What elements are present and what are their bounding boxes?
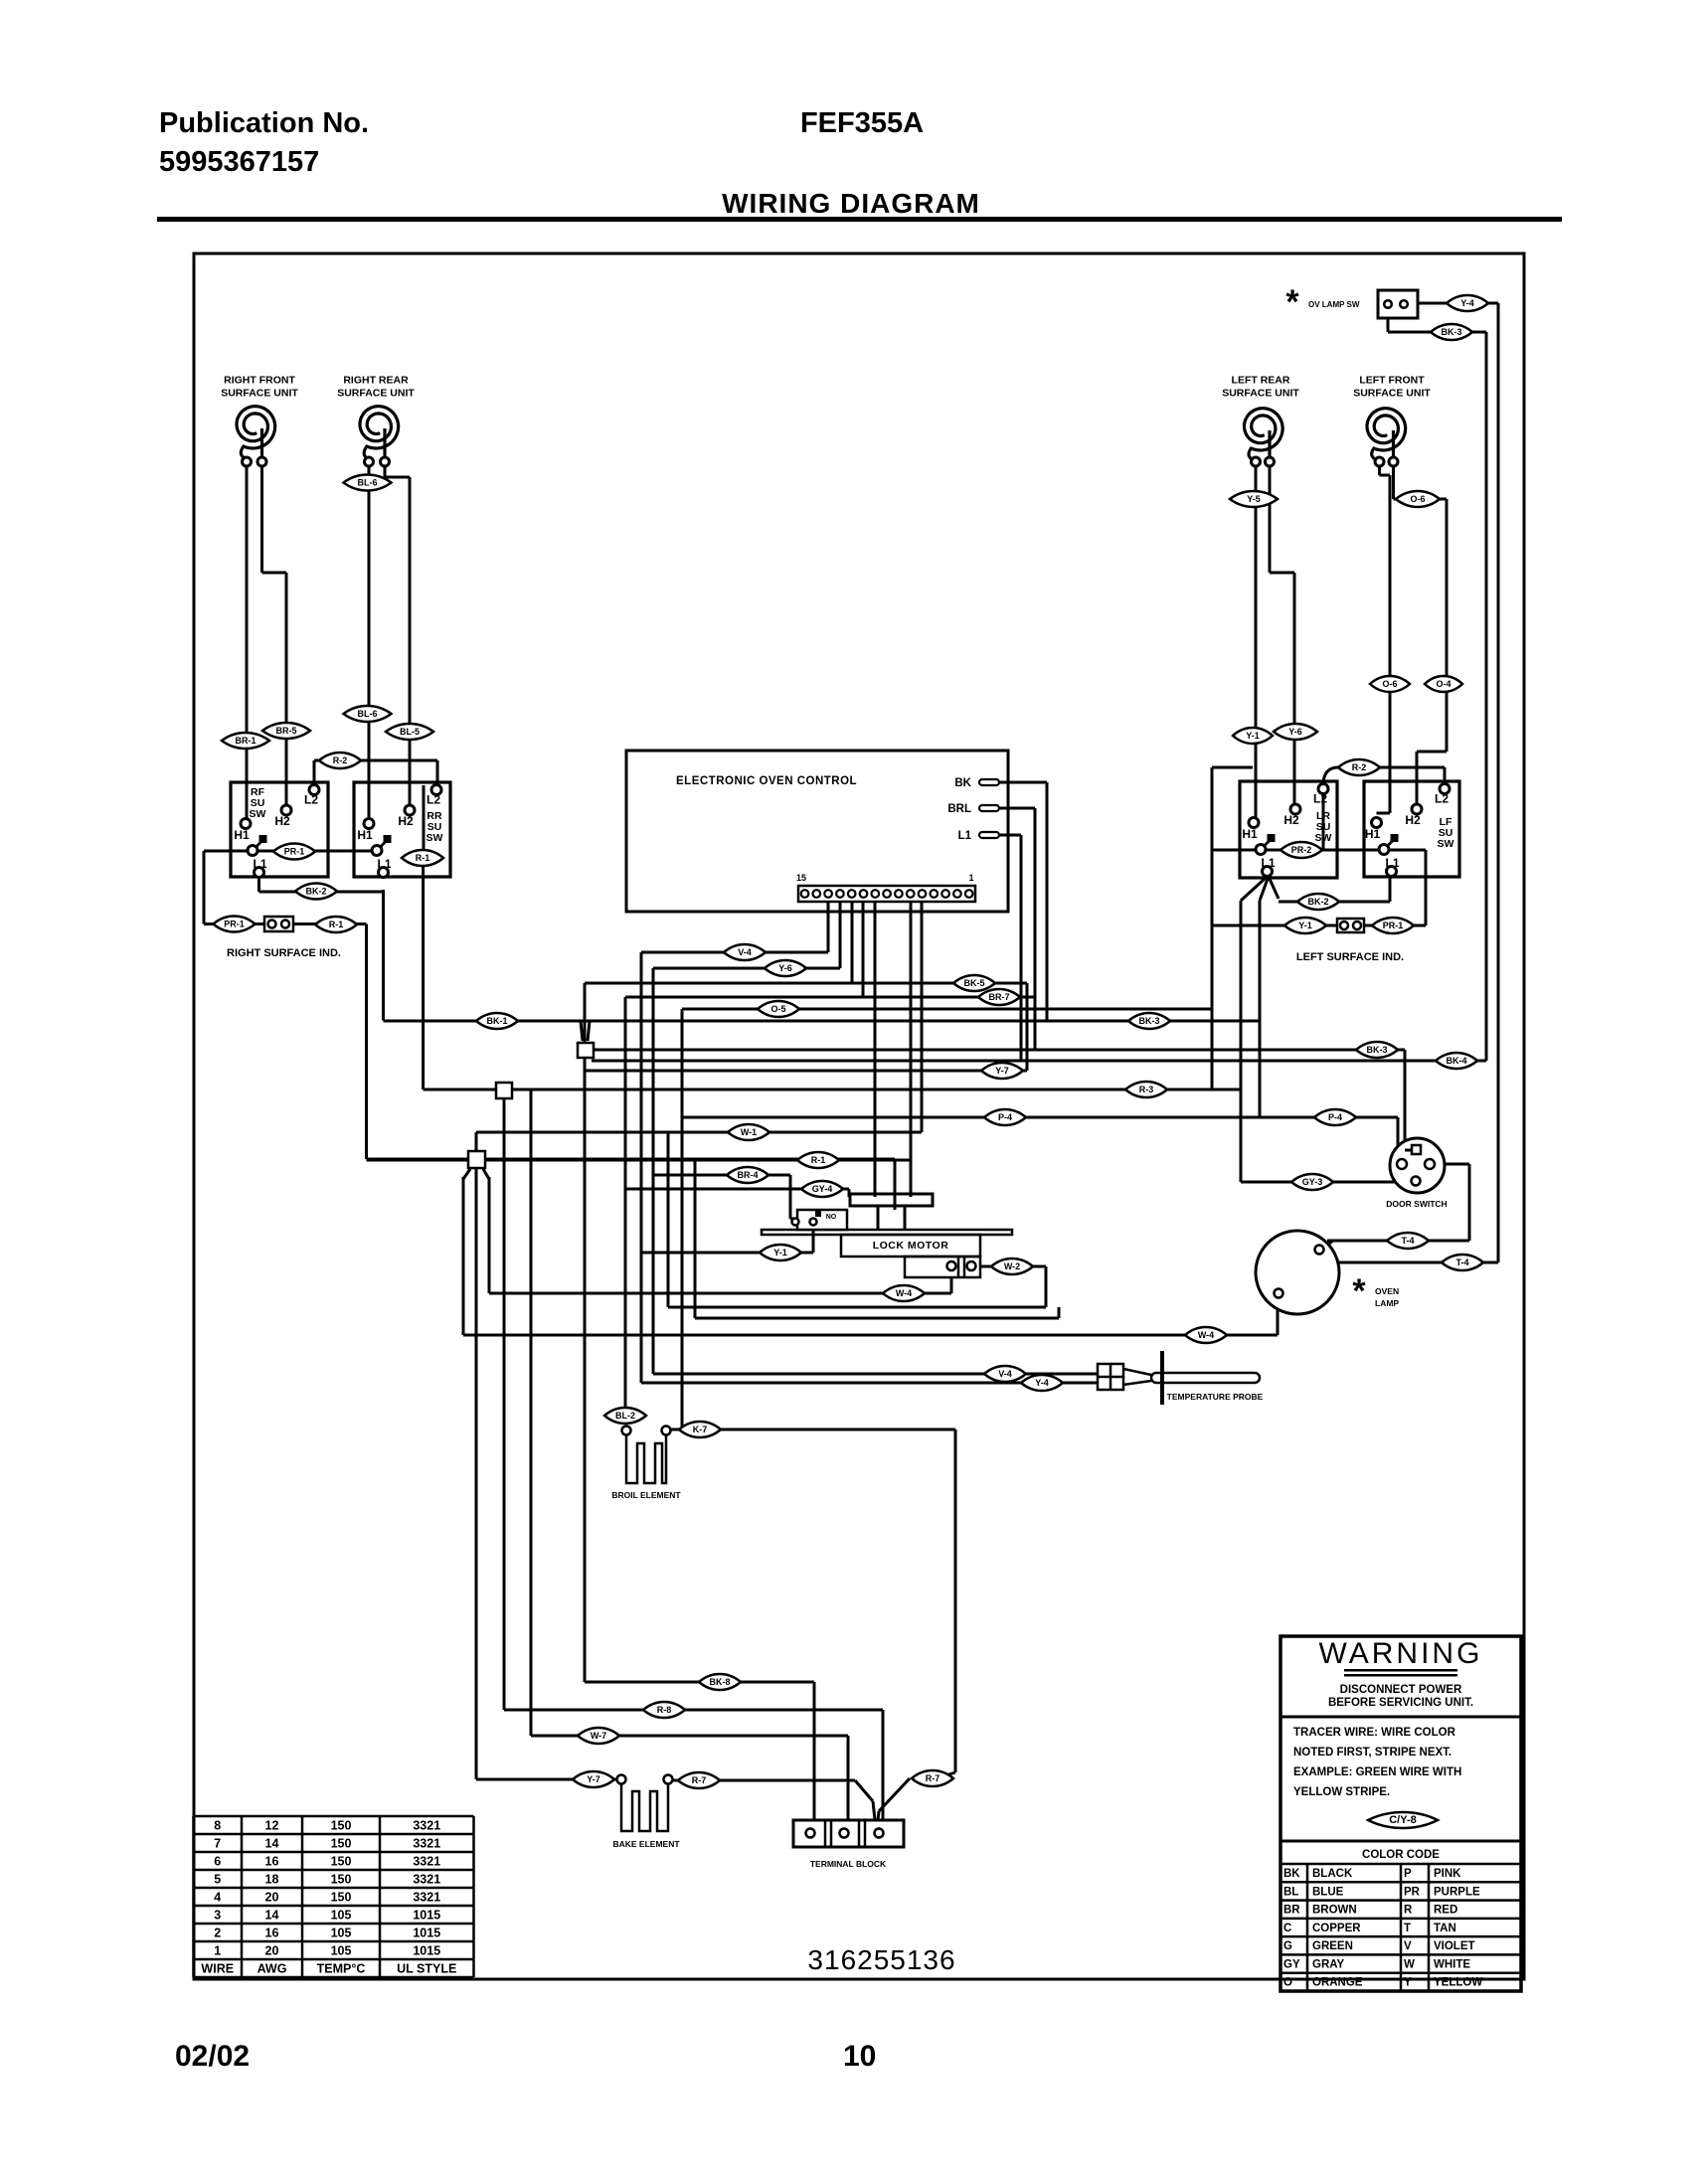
svg-text:T-4: T-4 [1455,1258,1468,1267]
svg-text:V-4: V-4 [998,1369,1012,1379]
svg-text:R-3: R-3 [1139,1085,1154,1094]
svg-text:5995367157: 5995367157 [159,146,319,178]
svg-text:16: 16 [265,1927,279,1940]
svg-text:WHITE: WHITE [1434,1958,1470,1970]
svg-text:4: 4 [214,1891,221,1905]
svg-text:YELLOW STRIPE.: YELLOW STRIPE. [1293,1786,1390,1798]
svg-text:COLOR CODE: COLOR CODE [1362,1849,1440,1861]
svg-text:2: 2 [214,1927,221,1940]
svg-text:3321: 3321 [413,1891,440,1905]
svg-text:L2: L2 [1435,792,1449,806]
svg-text:COPPER: COPPER [1312,1923,1361,1934]
svg-text:RED: RED [1434,1905,1457,1917]
svg-text:18: 18 [265,1873,279,1887]
svg-text:FEF355A: FEF355A [800,107,924,139]
svg-text:1015: 1015 [413,1927,440,1940]
svg-text:BAKE ELEMENT: BAKE ELEMENT [612,1839,680,1849]
svg-text:150: 150 [331,1837,352,1851]
svg-text:TERMINAL BLOCK: TERMINAL BLOCK [810,1859,887,1869]
svg-text:H1: H1 [1365,827,1381,841]
svg-text:T-4: T-4 [1401,1236,1414,1246]
svg-text:150: 150 [331,1873,352,1887]
svg-text:H2: H2 [274,814,290,828]
svg-text:AWG: AWG [257,1962,287,1976]
svg-text:*: * [1352,1272,1366,1310]
svg-text:1: 1 [968,873,973,883]
svg-text:OVEN: OVEN [1375,1286,1399,1296]
svg-text:H2: H2 [1405,813,1421,827]
svg-text:Y-4: Y-4 [1035,1378,1049,1388]
svg-text:PR-1: PR-1 [1383,921,1404,930]
svg-text:PR-1: PR-1 [224,920,245,929]
svg-text:3321: 3321 [413,1873,440,1887]
svg-text:R-2: R-2 [333,755,348,765]
svg-text:Y-7: Y-7 [995,1066,1009,1076]
svg-text:EXAMPLE: GREEN WIRE WITH: EXAMPLE: GREEN WIRE WITH [1293,1766,1461,1778]
svg-text:3321: 3321 [413,1837,440,1851]
svg-text:R: R [1404,1905,1413,1917]
svg-text:BL-6: BL-6 [358,478,378,488]
svg-text:20: 20 [265,1891,279,1905]
svg-text:LOCK MOTOR: LOCK MOTOR [873,1240,949,1252]
svg-text:T: T [1404,1923,1411,1934]
svg-text:TEMPERATURE PROBE: TEMPERATURE PROBE [1167,1392,1264,1402]
svg-text:BR-1: BR-1 [235,736,256,746]
svg-text:3321: 3321 [413,1855,440,1869]
svg-text:O-6: O-6 [1410,494,1425,504]
svg-text:SW: SW [1438,838,1454,850]
svg-text:6: 6 [214,1855,221,1869]
svg-text:W-1: W-1 [741,1127,757,1137]
svg-text:WIRING DIAGRAM: WIRING DIAGRAM [722,188,980,219]
svg-text:W-4: W-4 [1198,1330,1214,1340]
svg-text:PR: PR [1404,1886,1421,1898]
svg-text:LAMP: LAMP [1375,1298,1399,1308]
svg-text:BK-8: BK-8 [709,1677,730,1687]
svg-text:BL-6: BL-6 [358,709,378,719]
svg-text:GY-3: GY-3 [1302,1177,1323,1187]
svg-text:Y-6: Y-6 [778,963,792,973]
svg-text:3: 3 [214,1909,221,1923]
svg-text:G: G [1283,1940,1292,1952]
svg-text:TEMP°C: TEMP°C [317,1962,366,1976]
svg-text:14: 14 [265,1909,279,1923]
svg-text:BR-5: BR-5 [275,726,296,736]
svg-text:150: 150 [331,1819,352,1833]
svg-text:SW: SW [427,832,443,844]
svg-text:PR-2: PR-2 [1291,845,1312,855]
svg-text:C/Y-8: C/Y-8 [1389,1814,1417,1826]
svg-text:V-4: V-4 [738,947,752,957]
svg-text:O: O [1283,1977,1292,1989]
svg-text:Y-1: Y-1 [1246,731,1260,741]
svg-text:Y-1: Y-1 [773,1248,787,1258]
svg-text:Publication No.: Publication No. [159,107,369,139]
svg-text:BK-2: BK-2 [305,887,326,897]
svg-text:8: 8 [214,1819,221,1833]
svg-text:BK-3: BK-3 [1366,1045,1387,1055]
svg-text:BL: BL [1283,1886,1298,1898]
svg-text:BROIL ELEMENT: BROIL ELEMENT [611,1490,681,1500]
svg-text:C: C [1283,1923,1291,1934]
svg-text:SW: SW [250,808,266,820]
svg-text:L2: L2 [427,793,440,807]
svg-text:R-8: R-8 [657,1705,672,1715]
svg-text:TAN: TAN [1434,1923,1456,1934]
svg-text:ORANGE: ORANGE [1312,1977,1363,1989]
svg-text:P: P [1404,1868,1412,1880]
svg-text:150: 150 [331,1855,352,1869]
svg-text:LEFT REAR: LEFT REAR [1232,375,1290,387]
svg-text:5: 5 [214,1873,221,1887]
svg-text:Y-1: Y-1 [1298,921,1312,930]
svg-text:O-4: O-4 [1436,679,1451,689]
svg-text:Y-6: Y-6 [1288,727,1302,737]
svg-text:O-6: O-6 [1382,679,1397,689]
svg-text:VIOLET: VIOLET [1434,1940,1475,1952]
svg-text:ELECTRONIC OVEN CONTROL: ELECTRONIC OVEN CONTROL [676,775,857,787]
svg-text:WARNING: WARNING [1319,1637,1483,1670]
svg-text:105: 105 [331,1927,352,1940]
svg-text:Y-5: Y-5 [1247,494,1261,504]
svg-text:105: 105 [331,1944,352,1958]
svg-text:BK-1: BK-1 [486,1016,507,1026]
svg-text:UL STYLE: UL STYLE [397,1962,456,1976]
svg-text:BR: BR [1283,1905,1300,1917]
svg-text:R-1: R-1 [329,920,344,929]
svg-text:SURFACE UNIT: SURFACE UNIT [1222,388,1299,400]
svg-text:BL-2: BL-2 [615,1411,635,1421]
svg-text:RIGHT FRONT: RIGHT FRONT [224,375,295,387]
svg-text:BRL: BRL [947,803,971,815]
svg-text:W-7: W-7 [591,1731,606,1741]
svg-text:OV LAMP SW: OV LAMP SW [1308,300,1360,309]
svg-text:BK-5: BK-5 [963,978,984,988]
svg-text:H2: H2 [398,814,414,828]
svg-text:7: 7 [214,1837,221,1851]
svg-text:DOOR SWITCH: DOOR SWITCH [1386,1199,1447,1209]
svg-text:*: * [1285,283,1299,321]
svg-text:O-5: O-5 [770,1004,785,1014]
svg-text:R-1: R-1 [811,1155,826,1165]
svg-text:DISCONNECT POWER: DISCONNECT POWER [1340,1684,1462,1696]
svg-text:SURFACE UNIT: SURFACE UNIT [337,388,415,400]
svg-text:1: 1 [214,1944,221,1958]
svg-text:RIGHT REAR: RIGHT REAR [343,375,409,387]
svg-text:Y-4: Y-4 [1460,298,1474,308]
svg-text:RIGHT SURFACE IND.: RIGHT SURFACE IND. [227,947,341,959]
svg-text:L2: L2 [304,793,318,807]
svg-text:SURFACE UNIT: SURFACE UNIT [221,388,298,400]
svg-text:02/02: 02/02 [175,2040,250,2073]
svg-text:H1: H1 [357,828,373,842]
svg-text:15: 15 [796,873,806,883]
svg-text:16: 16 [265,1855,279,1869]
svg-text:PINK: PINK [1434,1868,1461,1880]
svg-text:BK: BK [1283,1868,1300,1880]
svg-text:H1: H1 [234,828,250,842]
svg-text:BK-3: BK-3 [1441,327,1461,337]
svg-text:BL-5: BL-5 [400,727,420,737]
svg-text:P-4: P-4 [998,1112,1012,1122]
svg-text:R-2: R-2 [1352,762,1367,772]
svg-text:BR-4: BR-4 [737,1170,758,1180]
svg-text:TRACER WIRE: WIRE COLOR: TRACER WIRE: WIRE COLOR [1293,1727,1456,1739]
svg-text:3321: 3321 [413,1819,440,1833]
svg-text:12: 12 [265,1819,279,1833]
svg-text:K-7: K-7 [693,1425,708,1434]
svg-text:R-1: R-1 [416,853,430,863]
svg-text:Y-7: Y-7 [587,1774,600,1784]
svg-text:GY-4: GY-4 [812,1184,833,1194]
svg-text:105: 105 [331,1909,352,1923]
svg-text:BK-4: BK-4 [1446,1056,1466,1066]
svg-text:H1: H1 [1242,827,1258,841]
svg-text:BR-7: BR-7 [988,992,1009,1002]
svg-text:LEFT FRONT: LEFT FRONT [1359,375,1425,387]
svg-text:PR-1: PR-1 [284,847,305,857]
svg-text:L2: L2 [1313,792,1327,806]
svg-text:P-4: P-4 [1328,1112,1342,1122]
svg-text:BLUE: BLUE [1312,1886,1344,1898]
svg-text:BK: BK [954,777,971,789]
svg-text:10: 10 [843,2040,876,2073]
svg-text:SW: SW [1315,832,1332,844]
svg-text:YELLOW: YELLOW [1434,1977,1482,1989]
svg-text:1015: 1015 [413,1909,440,1923]
svg-text:R-7: R-7 [926,1773,940,1783]
svg-text:GY: GY [1283,1958,1300,1970]
svg-text:14: 14 [265,1837,279,1851]
svg-text:SURFACE UNIT: SURFACE UNIT [1353,388,1431,400]
svg-text:GREEN: GREEN [1312,1940,1353,1952]
svg-text:R-7: R-7 [692,1775,707,1785]
svg-text:BROWN: BROWN [1312,1905,1357,1917]
svg-text:W-2: W-2 [1004,1261,1020,1271]
svg-text:L1: L1 [958,830,972,842]
svg-text:NO: NO [826,1214,837,1221]
svg-text:150: 150 [331,1891,352,1905]
svg-text:316255136: 316255136 [807,1944,955,1975]
svg-text:PURPLE: PURPLE [1434,1886,1480,1898]
svg-text:W: W [1404,1958,1415,1970]
svg-text:BLACK: BLACK [1312,1868,1353,1880]
svg-text:BEFORE SERVICING UNIT.: BEFORE SERVICING UNIT. [1328,1697,1473,1709]
svg-text:LEFT SURFACE IND.: LEFT SURFACE IND. [1296,951,1404,963]
svg-text:W-4: W-4 [896,1288,912,1298]
svg-text:BK-3: BK-3 [1138,1016,1159,1026]
svg-text:GRAY: GRAY [1312,1958,1344,1970]
svg-text:NOTED FIRST, STRIPE NEXT.: NOTED FIRST, STRIPE NEXT. [1293,1747,1452,1759]
svg-text:BK-2: BK-2 [1307,897,1328,907]
svg-text:20: 20 [265,1944,279,1958]
svg-text:WIRE: WIRE [201,1962,234,1976]
svg-text:Y: Y [1404,1977,1412,1989]
svg-text:V: V [1404,1940,1412,1952]
svg-text:H2: H2 [1283,813,1299,827]
svg-text:1015: 1015 [413,1944,440,1958]
